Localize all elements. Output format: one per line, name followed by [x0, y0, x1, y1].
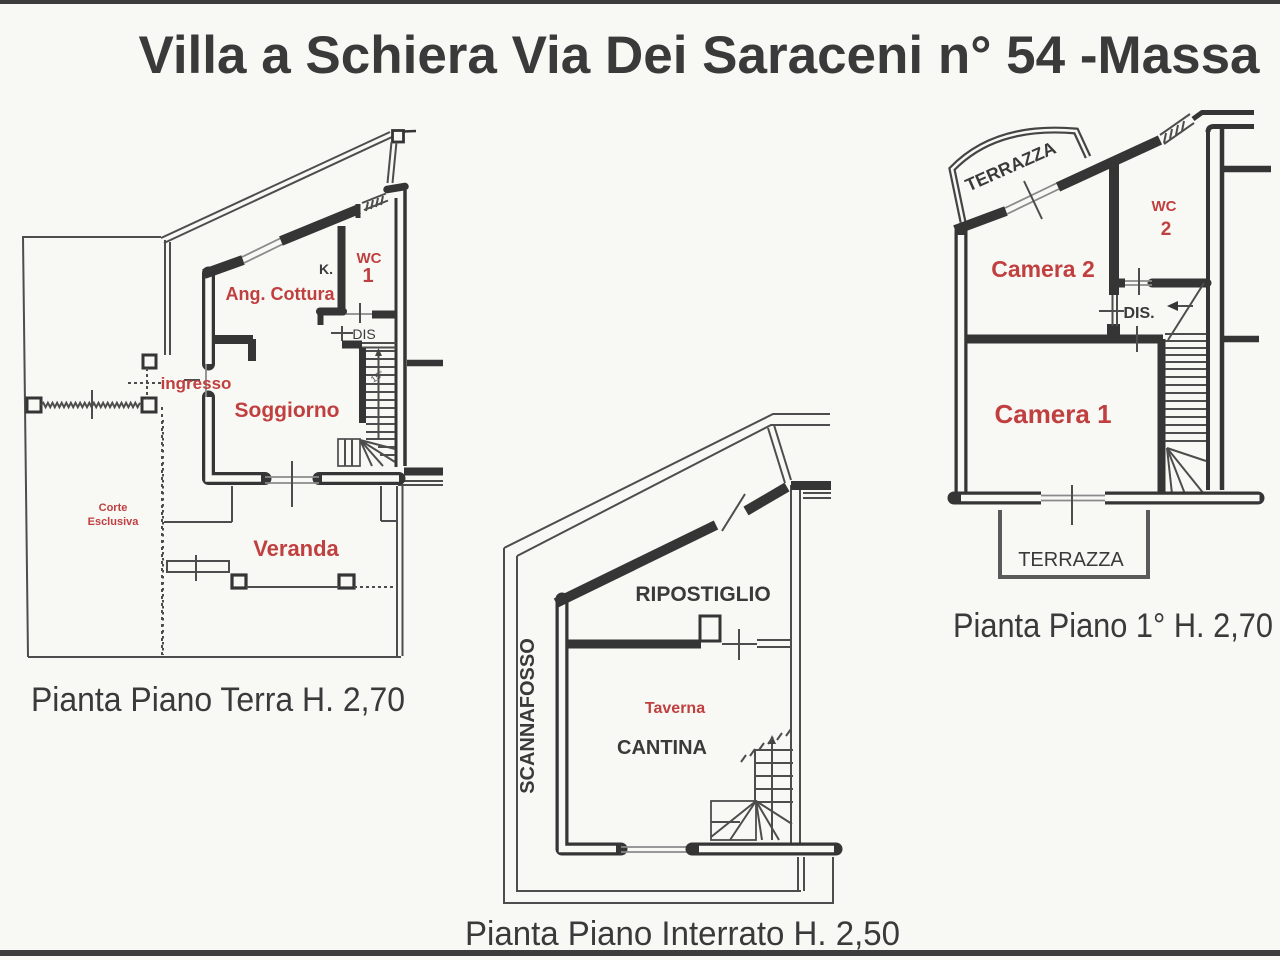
svg-text:1: 1 — [362, 265, 373, 287]
svg-text:WC: WC — [1152, 198, 1177, 215]
svg-text:SCANNAFOSSO: SCANNAFOSSO — [517, 638, 539, 794]
svg-text:CANTINA: CANTINA — [617, 737, 707, 759]
svg-text:Pianta Piano 1° H. 2,70: Pianta Piano 1° H. 2,70 — [953, 607, 1273, 645]
svg-text:Villa a Schiera Via Dei Sarace: Villa a Schiera Via Dei Saraceni n° 54 -… — [138, 26, 1260, 85]
svg-text:Veranda: Veranda — [253, 536, 339, 561]
svg-text:Camera 2: Camera 2 — [991, 256, 1095, 282]
svg-text:Pianta Piano Terra H. 2,70: Pianta Piano Terra H. 2,70 — [31, 681, 405, 719]
svg-text:DIS.: DIS. — [1123, 305, 1154, 322]
svg-text:Camera 1: Camera 1 — [994, 399, 1111, 429]
svg-text:K.: K. — [319, 261, 333, 277]
svg-text:Ang. Cottura: Ang. Cottura — [226, 284, 336, 304]
svg-text:Esclusiva: Esclusiva — [88, 516, 140, 528]
svg-text:TERRAZZA: TERRAZZA — [1018, 549, 1124, 571]
svg-text:Taverna: Taverna — [645, 700, 705, 717]
svg-text:Pianta Piano Interrato H. 2,50: Pianta Piano Interrato H. 2,50 — [465, 915, 900, 953]
svg-text:Corte: Corte — [99, 502, 128, 514]
svg-text:15°: 15° — [369, 368, 386, 384]
svg-text:DIS: DIS — [352, 326, 375, 342]
svg-text:Soggiorno: Soggiorno — [235, 399, 340, 422]
svg-text:2: 2 — [1161, 219, 1172, 240]
svg-text:RIPOSTIGLIO: RIPOSTIGLIO — [635, 583, 770, 606]
svg-text:ingresso: ingresso — [161, 374, 232, 393]
